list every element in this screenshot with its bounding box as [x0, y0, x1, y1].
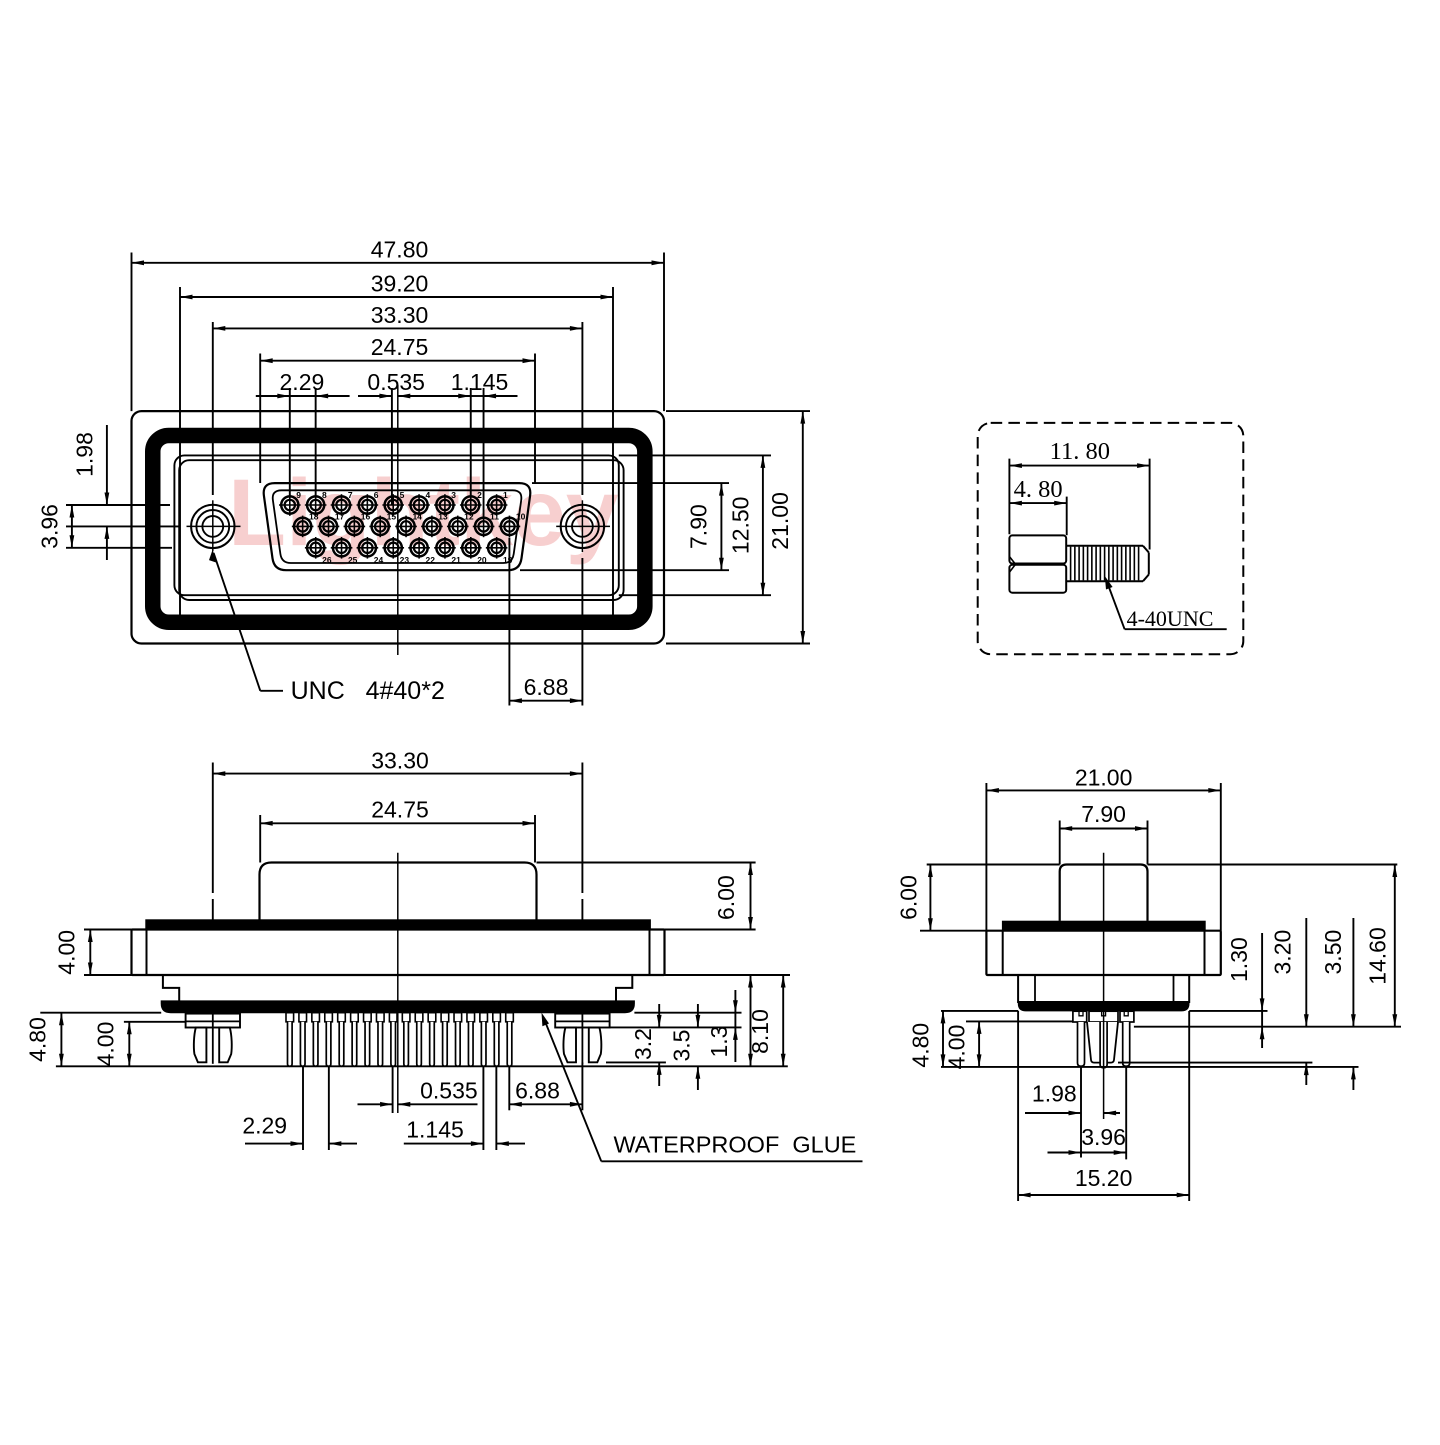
- svg-text:11. 80: 11. 80: [1050, 438, 1110, 465]
- svg-text:4: 4: [425, 490, 430, 500]
- svg-text:12: 12: [464, 511, 474, 521]
- svg-text:6.88: 6.88: [524, 674, 569, 700]
- svg-text:1: 1: [503, 490, 508, 500]
- svg-text:3: 3: [451, 490, 456, 500]
- svg-text:1.98: 1.98: [1032, 1081, 1077, 1107]
- svg-text:UNC 4#40*2: UNC 4#40*2: [291, 677, 445, 705]
- svg-text:3.2: 3.2: [630, 1028, 656, 1060]
- svg-text:3.50: 3.50: [1320, 930, 1346, 975]
- svg-text:4-40UNC: 4-40UNC: [1127, 606, 1214, 631]
- svg-text:21: 21: [451, 555, 461, 565]
- svg-text:8.10: 8.10: [747, 1009, 773, 1054]
- svg-text:1.3: 1.3: [706, 1026, 732, 1058]
- svg-text:7.90: 7.90: [686, 504, 712, 549]
- svg-text:5: 5: [400, 490, 405, 500]
- svg-text:11: 11: [490, 511, 499, 521]
- svg-text:6: 6: [374, 490, 379, 500]
- svg-text:15.20: 15.20: [1075, 1165, 1133, 1191]
- svg-text:0.535: 0.535: [420, 1077, 478, 1103]
- svg-text:1.30: 1.30: [1226, 937, 1252, 982]
- svg-text:26: 26: [322, 555, 332, 565]
- svg-text:21.00: 21.00: [1075, 764, 1133, 790]
- svg-text:39.20: 39.20: [371, 271, 429, 297]
- svg-text:19: 19: [503, 555, 513, 565]
- svg-text:1.145: 1.145: [451, 369, 509, 395]
- svg-text:15: 15: [387, 511, 397, 521]
- svg-text:6.00: 6.00: [713, 875, 739, 920]
- svg-text:20: 20: [477, 555, 487, 565]
- svg-text:4.00: 4.00: [944, 1025, 970, 1070]
- svg-text:24: 24: [374, 555, 384, 565]
- svg-text:25: 25: [348, 555, 358, 565]
- svg-text:10: 10: [516, 511, 526, 521]
- svg-text:7.90: 7.90: [1081, 801, 1126, 827]
- svg-text:4.80: 4.80: [908, 1023, 934, 1068]
- svg-text:2.29: 2.29: [242, 1113, 287, 1139]
- svg-text:4.00: 4.00: [53, 930, 79, 975]
- svg-text:24.75: 24.75: [371, 334, 429, 360]
- svg-text:6.88: 6.88: [515, 1077, 560, 1103]
- svg-text:2.29: 2.29: [280, 369, 325, 395]
- svg-text:47.80: 47.80: [371, 236, 429, 262]
- svg-text:18: 18: [309, 511, 319, 521]
- svg-text:7: 7: [348, 490, 353, 500]
- svg-text:6.00: 6.00: [896, 875, 922, 920]
- svg-text:2: 2: [477, 490, 482, 500]
- svg-text:3.5: 3.5: [669, 1030, 695, 1062]
- svg-text:1.145: 1.145: [406, 1116, 464, 1142]
- svg-text:33.30: 33.30: [371, 302, 429, 328]
- svg-text:33.30: 33.30: [371, 747, 429, 773]
- svg-text:8: 8: [322, 490, 327, 500]
- svg-text:16: 16: [361, 511, 371, 521]
- svg-text:14.60: 14.60: [1365, 927, 1391, 985]
- svg-text:9: 9: [296, 490, 301, 500]
- svg-text:12.50: 12.50: [727, 497, 753, 555]
- svg-text:3.96: 3.96: [36, 504, 62, 549]
- svg-text:WATERPROOF GLUE: WATERPROOF GLUE: [614, 1132, 857, 1158]
- svg-text:4. 80: 4. 80: [1014, 476, 1063, 503]
- svg-text:4.80: 4.80: [24, 1017, 50, 1062]
- svg-text:0.535: 0.535: [367, 369, 425, 395]
- svg-text:24.75: 24.75: [371, 797, 429, 823]
- svg-text:23: 23: [400, 555, 410, 565]
- svg-text:4.00: 4.00: [92, 1022, 118, 1067]
- svg-text:22: 22: [426, 555, 436, 565]
- svg-text:13: 13: [438, 511, 448, 521]
- svg-text:14: 14: [412, 511, 422, 521]
- svg-text:3.20: 3.20: [1269, 930, 1295, 975]
- svg-text:3.96: 3.96: [1081, 1124, 1126, 1150]
- svg-text:21.00: 21.00: [767, 492, 793, 550]
- svg-text:17: 17: [335, 511, 345, 521]
- svg-text:1.98: 1.98: [72, 432, 98, 477]
